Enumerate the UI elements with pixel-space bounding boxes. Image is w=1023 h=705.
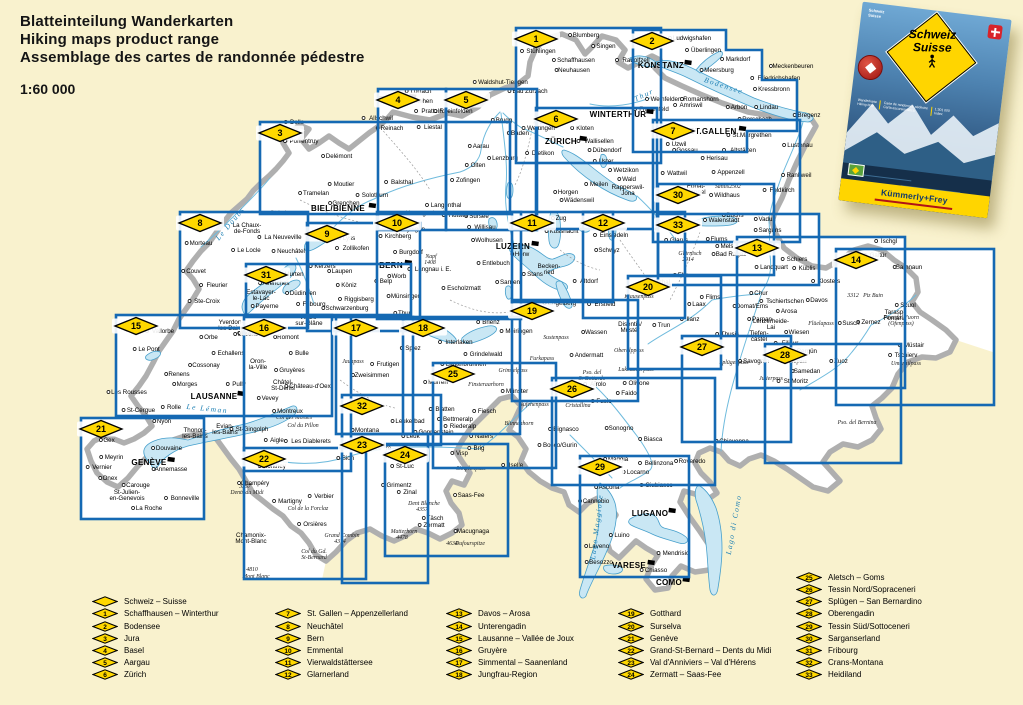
legend-number: 9 (286, 636, 290, 643)
legend-label: Jura (124, 634, 140, 643)
legend-label: Zermatt – Saas-Fee (650, 670, 721, 679)
legend-entry-2: 2Bodensee (92, 620, 219, 632)
legend-diamond-icon: 12 (275, 669, 301, 680)
legend-entry-10: 10Emmental (275, 644, 408, 656)
legend-diamond-icon: 21 (618, 633, 644, 644)
legend-label: Simmental – Saanenland (478, 658, 567, 667)
legend-entry-4: 4Basel (92, 644, 219, 656)
legend-diamond-icon: 9 (275, 633, 301, 644)
legend-diamond-icon: 5 (92, 657, 118, 668)
legend-number: 11 (285, 660, 292, 667)
hiker-icon (927, 54, 937, 68)
legend-number: 7 (286, 611, 290, 618)
legend-diamond-icon: 2 (92, 621, 118, 632)
legend-number: 33 (805, 672, 813, 679)
legend-number: 24 (627, 672, 635, 679)
legend-column-3: 13Davos – Arosa14Unterengadin15Lausanne … (446, 608, 574, 681)
cover-diamond-line2: Suisse (887, 41, 977, 56)
legend-entry-31: 31Fribourg (796, 644, 922, 656)
legend-number: 29 (805, 624, 813, 631)
legend-entry-9: 9Bern (275, 632, 408, 644)
legend-label: Tessin Nord/Sopraceneri (828, 585, 916, 594)
legend-entry-7: 7St. Gallen – Appenzellerland (275, 608, 408, 620)
legend-entry-12: 12Glarnerland (275, 669, 408, 681)
legend-number: 2 (103, 624, 107, 631)
legend-entry-32: 32Crans-Montana (796, 657, 922, 669)
legend-entry-8: 8Neuchâtel (275, 620, 408, 632)
legend-number: 5 (103, 660, 107, 667)
legend-diamond-icon: 7 (275, 608, 301, 619)
legend-number: 15 (455, 636, 463, 643)
legend-label: Gotthard (650, 609, 681, 618)
legend-label: Bern (307, 634, 324, 643)
legend-label: Tessin Süd/Sottoceneri (828, 622, 910, 631)
legend-number: 8 (286, 624, 290, 631)
legend-label: Basel (124, 646, 144, 655)
legend-entry-5: 5Aargau (92, 657, 219, 669)
title-block: Blatteinteilung Wanderkarten Hiking maps… (20, 13, 365, 97)
legend-diamond-icon: 19 (618, 608, 644, 619)
legend-entry-6: 6Zürich (92, 669, 219, 681)
legend-label: Aargau (124, 658, 150, 667)
legend-number: 28 (805, 611, 813, 618)
legend-diamond-icon: 16 (446, 645, 472, 656)
legend-entry-26: 26Tessin Nord/Sopraceneri (796, 584, 922, 596)
legend-entry-3: 3Jura (92, 632, 219, 644)
legend-label: Splügen – San Bernardino (828, 597, 922, 606)
legend-label: Oberengadin (828, 609, 874, 618)
legend-column-1: Schweiz – Suisse1Schaffhausen – Winterth… (92, 596, 219, 681)
legend-entry-21: 21Genève (618, 632, 771, 644)
legend-diamond-icon: 28 (796, 608, 822, 619)
divider (930, 107, 932, 116)
legend-entry-13: 13Davos – Arosa (446, 608, 574, 620)
legend-label: St. Gallen – Appenzellerland (307, 609, 408, 618)
legend-label: Emmental (307, 646, 343, 655)
legend-number: 23 (627, 660, 635, 667)
title-english: Hiking maps product range (20, 31, 365, 49)
legend-label: Val d'Anniviers – Val d'Hérens (650, 658, 756, 667)
title-french: Assemblage des cartes de randonnée pédes… (20, 49, 365, 67)
legend-number: 18 (455, 672, 463, 679)
legend-diamond-icon: 8 (275, 621, 301, 632)
cover-minimap-icon (847, 163, 864, 177)
legend-entry-28: 28Oberengadin (796, 608, 922, 620)
legend-number: 4 (103, 648, 107, 655)
legend-diamond-icon: 26 (796, 584, 822, 595)
legend-label: Gruyère (478, 646, 507, 655)
legend-number: 13 (455, 611, 463, 618)
legend-column-5: 25Aletsch – Goms26Tessin Nord/Sopracener… (796, 571, 922, 681)
cover-diamond-text: Schweiz Suisse (887, 28, 978, 75)
legend-number: 22 (627, 648, 635, 655)
legend-number: 14 (455, 624, 463, 631)
legend-entry-14: 14Unterengadin (446, 620, 574, 632)
legend-label: Fribourg (828, 646, 858, 655)
legend-entry-1: 1Schaffhausen – Winterthur (92, 608, 219, 620)
legend-label: Heidiland (828, 670, 861, 679)
legend-label: Surselva (650, 622, 681, 631)
legend-number: 30 (805, 636, 813, 643)
legend-number: 12 (284, 672, 292, 679)
legend-label: Grand-St-Bernard – Dents du Midi (650, 646, 771, 655)
legend-number: 16 (455, 648, 463, 655)
legend-entry-25: 25Aletsch – Goms (796, 571, 922, 583)
legend-label: Zürich (124, 670, 146, 679)
legend-diamond-icon: 14 (446, 621, 472, 632)
legend-label: Schaffhausen – Winterthur (124, 609, 219, 618)
legend-entry-20: 20Surselva (618, 620, 771, 632)
legend-diamond-icon: 1 (92, 608, 118, 619)
title-german: Blatteinteilung Wanderkarten (20, 13, 365, 31)
legend-number: 20 (627, 624, 635, 631)
legend-number: 6 (103, 672, 107, 679)
product-cover: Schweiz Suisse Schweiz Suisse Wanderkart… (838, 2, 1011, 219)
legend-diamond-shape (93, 597, 117, 606)
legend-diamond-icon: 32 (796, 657, 822, 668)
legend-label: Davos – Arosa (478, 609, 530, 618)
legend-number: 17 (455, 660, 463, 667)
legend-entry-18: 18Jungfrau-Region (446, 669, 574, 681)
legend-diamond-icon: 3 (92, 633, 118, 644)
legend-entry-16: 16Gruyère (446, 644, 574, 656)
legend-number: 10 (284, 648, 292, 655)
divider (879, 100, 881, 109)
legend-diamond-icon: 11 (275, 657, 301, 668)
legend-diamond-icon: 6 (92, 669, 118, 680)
legend-diamond-icon: 23 (618, 657, 644, 668)
legend-diamond-icon: 10 (275, 645, 301, 656)
legend-number: 19 (627, 611, 635, 618)
legend-diamond-icon: 27 (796, 596, 822, 607)
legend-diamond-icon: 29 (796, 621, 822, 632)
legend-number: 21 (627, 636, 635, 643)
legend-entry-24: 24Zermatt – Saas-Fee (618, 669, 771, 681)
legend-diamond-icon: 22 (618, 645, 644, 656)
cover-info-right: 1:301 000 Index (934, 107, 950, 118)
legend-number: 32 (805, 660, 813, 667)
legend-diamond-icon: 31 (796, 645, 822, 656)
legend-number: 1 (103, 611, 107, 618)
legend-column-4: 19Gotthard20Surselva21Genève22Grand-St-B… (618, 608, 771, 681)
legend-entry-11: 11Vierwaldstättersee (275, 657, 408, 669)
legend-label: Glarnerland (307, 670, 349, 679)
legend-entry-30: 30Sarganserland (796, 632, 922, 644)
legend-column-2: 7St. Gallen – Appenzellerland8Neuchâtel9… (275, 608, 408, 681)
legend-entry-27: 27Splügen – San Bernardino (796, 596, 922, 608)
catalog-page: BASELZÜRICHWINTERTHURKONSTANZST.GALLENBI… (0, 0, 1023, 705)
legend-entry-22: 22Grand-St-Bernard – Dents du Midi (618, 644, 771, 656)
legend-number: 27 (805, 599, 813, 606)
legend-label: Aletsch – Goms (828, 573, 884, 582)
legend-diamond-icon (92, 596, 118, 607)
legend-number: 3 (103, 636, 107, 643)
legend-label: Jungfrau-Region (478, 670, 537, 679)
legend-diamond-icon: 15 (446, 633, 472, 644)
legend-number: 26 (805, 587, 813, 594)
legend-entry-33: 33Heidiland (796, 669, 922, 681)
legend-entry-29: 29Tessin Süd/Sottoceneri (796, 620, 922, 632)
legend-label: Bodensee (124, 622, 160, 631)
legend-diamond-icon: 17 (446, 657, 472, 668)
legend-label: Genève (650, 634, 678, 643)
legend-number: 31 (805, 648, 813, 655)
legend-label: Unterengadin (478, 622, 526, 631)
legend-entry-schweiz: Schweiz – Suisse (92, 596, 219, 608)
legend-entry-17: 17Simmental – Saanenland (446, 657, 574, 669)
legend-number: 25 (805, 575, 813, 582)
legend-entry-19: 19Gotthard (618, 608, 771, 620)
map-scale: 1:60 000 (20, 81, 365, 97)
legend-label: Lausanne – Vallée de Joux (478, 634, 574, 643)
legend-diamond-icon: 4 (92, 645, 118, 656)
legend-label: Sarganserland (828, 634, 880, 643)
legend-diamond-icon: 18 (446, 669, 472, 680)
legend-diamond-icon: 30 (796, 633, 822, 644)
legend-entry-23: 23Val d'Anniviers – Val d'Hérens (618, 657, 771, 669)
legend-diamond-icon: 24 (618, 669, 644, 680)
legend-entry-15: 15Lausanne – Vallée de Joux (446, 632, 574, 644)
legend-label: Crans-Montana (828, 658, 883, 667)
legend-diamond-icon: 33 (796, 669, 822, 680)
legend-diamond-icon: 13 (446, 608, 472, 619)
legend-label: Vierwaldstättersee (307, 658, 373, 667)
legend-label: Neuchâtel (307, 622, 343, 631)
legend-label: Schweiz – Suisse (124, 597, 187, 606)
legend-diamond-icon: 25 (796, 572, 822, 583)
legend-diamond-icon: 20 (618, 621, 644, 632)
